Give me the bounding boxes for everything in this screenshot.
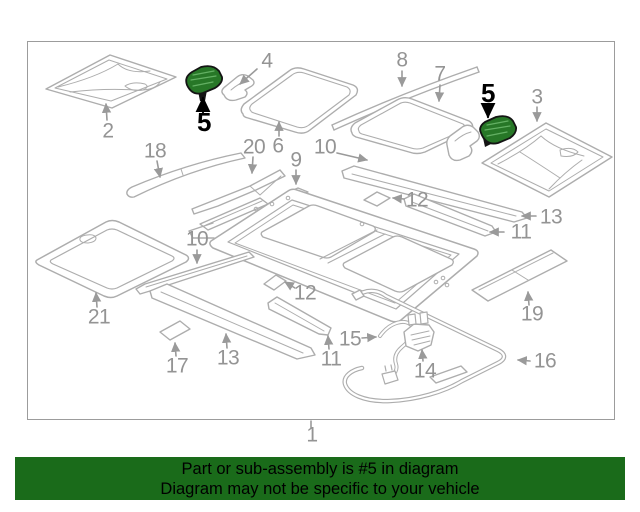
parts-diagram-page: 2546875318209101213111012211713111514161… bbox=[0, 0, 640, 512]
part-17-pad bbox=[160, 321, 190, 340]
callout-3[interactable]: 3 bbox=[531, 87, 542, 108]
callout-1[interactable]: 1 bbox=[306, 425, 317, 446]
callout-10-top[interactable]: 10 bbox=[314, 137, 336, 158]
callout-15[interactable]: 15 bbox=[339, 329, 361, 350]
callout-12-left[interactable]: 12 bbox=[294, 283, 316, 304]
callout-21[interactable]: 21 bbox=[88, 307, 110, 328]
callout-14[interactable]: 14 bbox=[414, 361, 436, 382]
callout-4-left[interactable]: 4 bbox=[261, 51, 272, 72]
callout-11-left[interactable]: 11 bbox=[321, 349, 342, 370]
callout-10-left[interactable]: 10 bbox=[186, 229, 208, 250]
part-4-left-clip bbox=[222, 75, 254, 101]
callout-13-left[interactable]: 13 bbox=[217, 348, 239, 369]
highlight-banner: Part or sub-assembly is #5 in diagram Di… bbox=[15, 457, 625, 500]
callout-11-right[interactable]: 11 bbox=[511, 222, 532, 243]
callout-2[interactable]: 2 bbox=[102, 121, 113, 142]
callout-13-right[interactable]: 13 bbox=[540, 207, 562, 228]
callout-19[interactable]: 19 bbox=[521, 304, 543, 325]
callout-17[interactable]: 17 bbox=[166, 356, 188, 377]
callout-8[interactable]: 8 bbox=[396, 50, 407, 71]
banner-line-2: Diagram may not be specific to your vehi… bbox=[160, 479, 479, 499]
callout-5-right[interactable]: 5 bbox=[481, 80, 495, 106]
diagram-artwork bbox=[0, 0, 640, 512]
callout-18[interactable]: 18 bbox=[144, 141, 166, 162]
banner-line-1: Part or sub-assembly is #5 in diagram bbox=[182, 459, 459, 479]
part-19-trim-strip bbox=[472, 250, 567, 301]
callout-arrow-12-right bbox=[393, 198, 404, 199]
callout-arrow-2 bbox=[106, 104, 107, 120]
callout-arrow-7 bbox=[439, 85, 440, 101]
part-12-right-pad bbox=[364, 192, 390, 206]
callout-5-left[interactable]: 5 bbox=[197, 109, 211, 135]
part-6-glass-panel bbox=[241, 68, 357, 133]
callout-20[interactable]: 20 bbox=[243, 137, 265, 158]
callout-6[interactable]: 6 bbox=[272, 136, 283, 157]
part-2-wind-deflector bbox=[46, 55, 176, 108]
callout-9[interactable]: 9 bbox=[290, 150, 301, 171]
part-5-bracket-left-highlighted[interactable] bbox=[186, 66, 222, 101]
callout-7[interactable]: 7 bbox=[434, 64, 445, 85]
callout-arrow-16 bbox=[518, 360, 530, 361]
callout-12-right[interactable]: 12 bbox=[406, 190, 428, 211]
callout-arrow-18 bbox=[157, 161, 160, 177]
part-5-bracket-right-highlighted[interactable] bbox=[480, 116, 516, 147]
callout-arrow-10-top bbox=[337, 153, 367, 160]
callout-arrow-15 bbox=[362, 337, 376, 338]
callout-arrow-20 bbox=[252, 157, 253, 173]
callout-16[interactable]: 16 bbox=[534, 351, 556, 372]
